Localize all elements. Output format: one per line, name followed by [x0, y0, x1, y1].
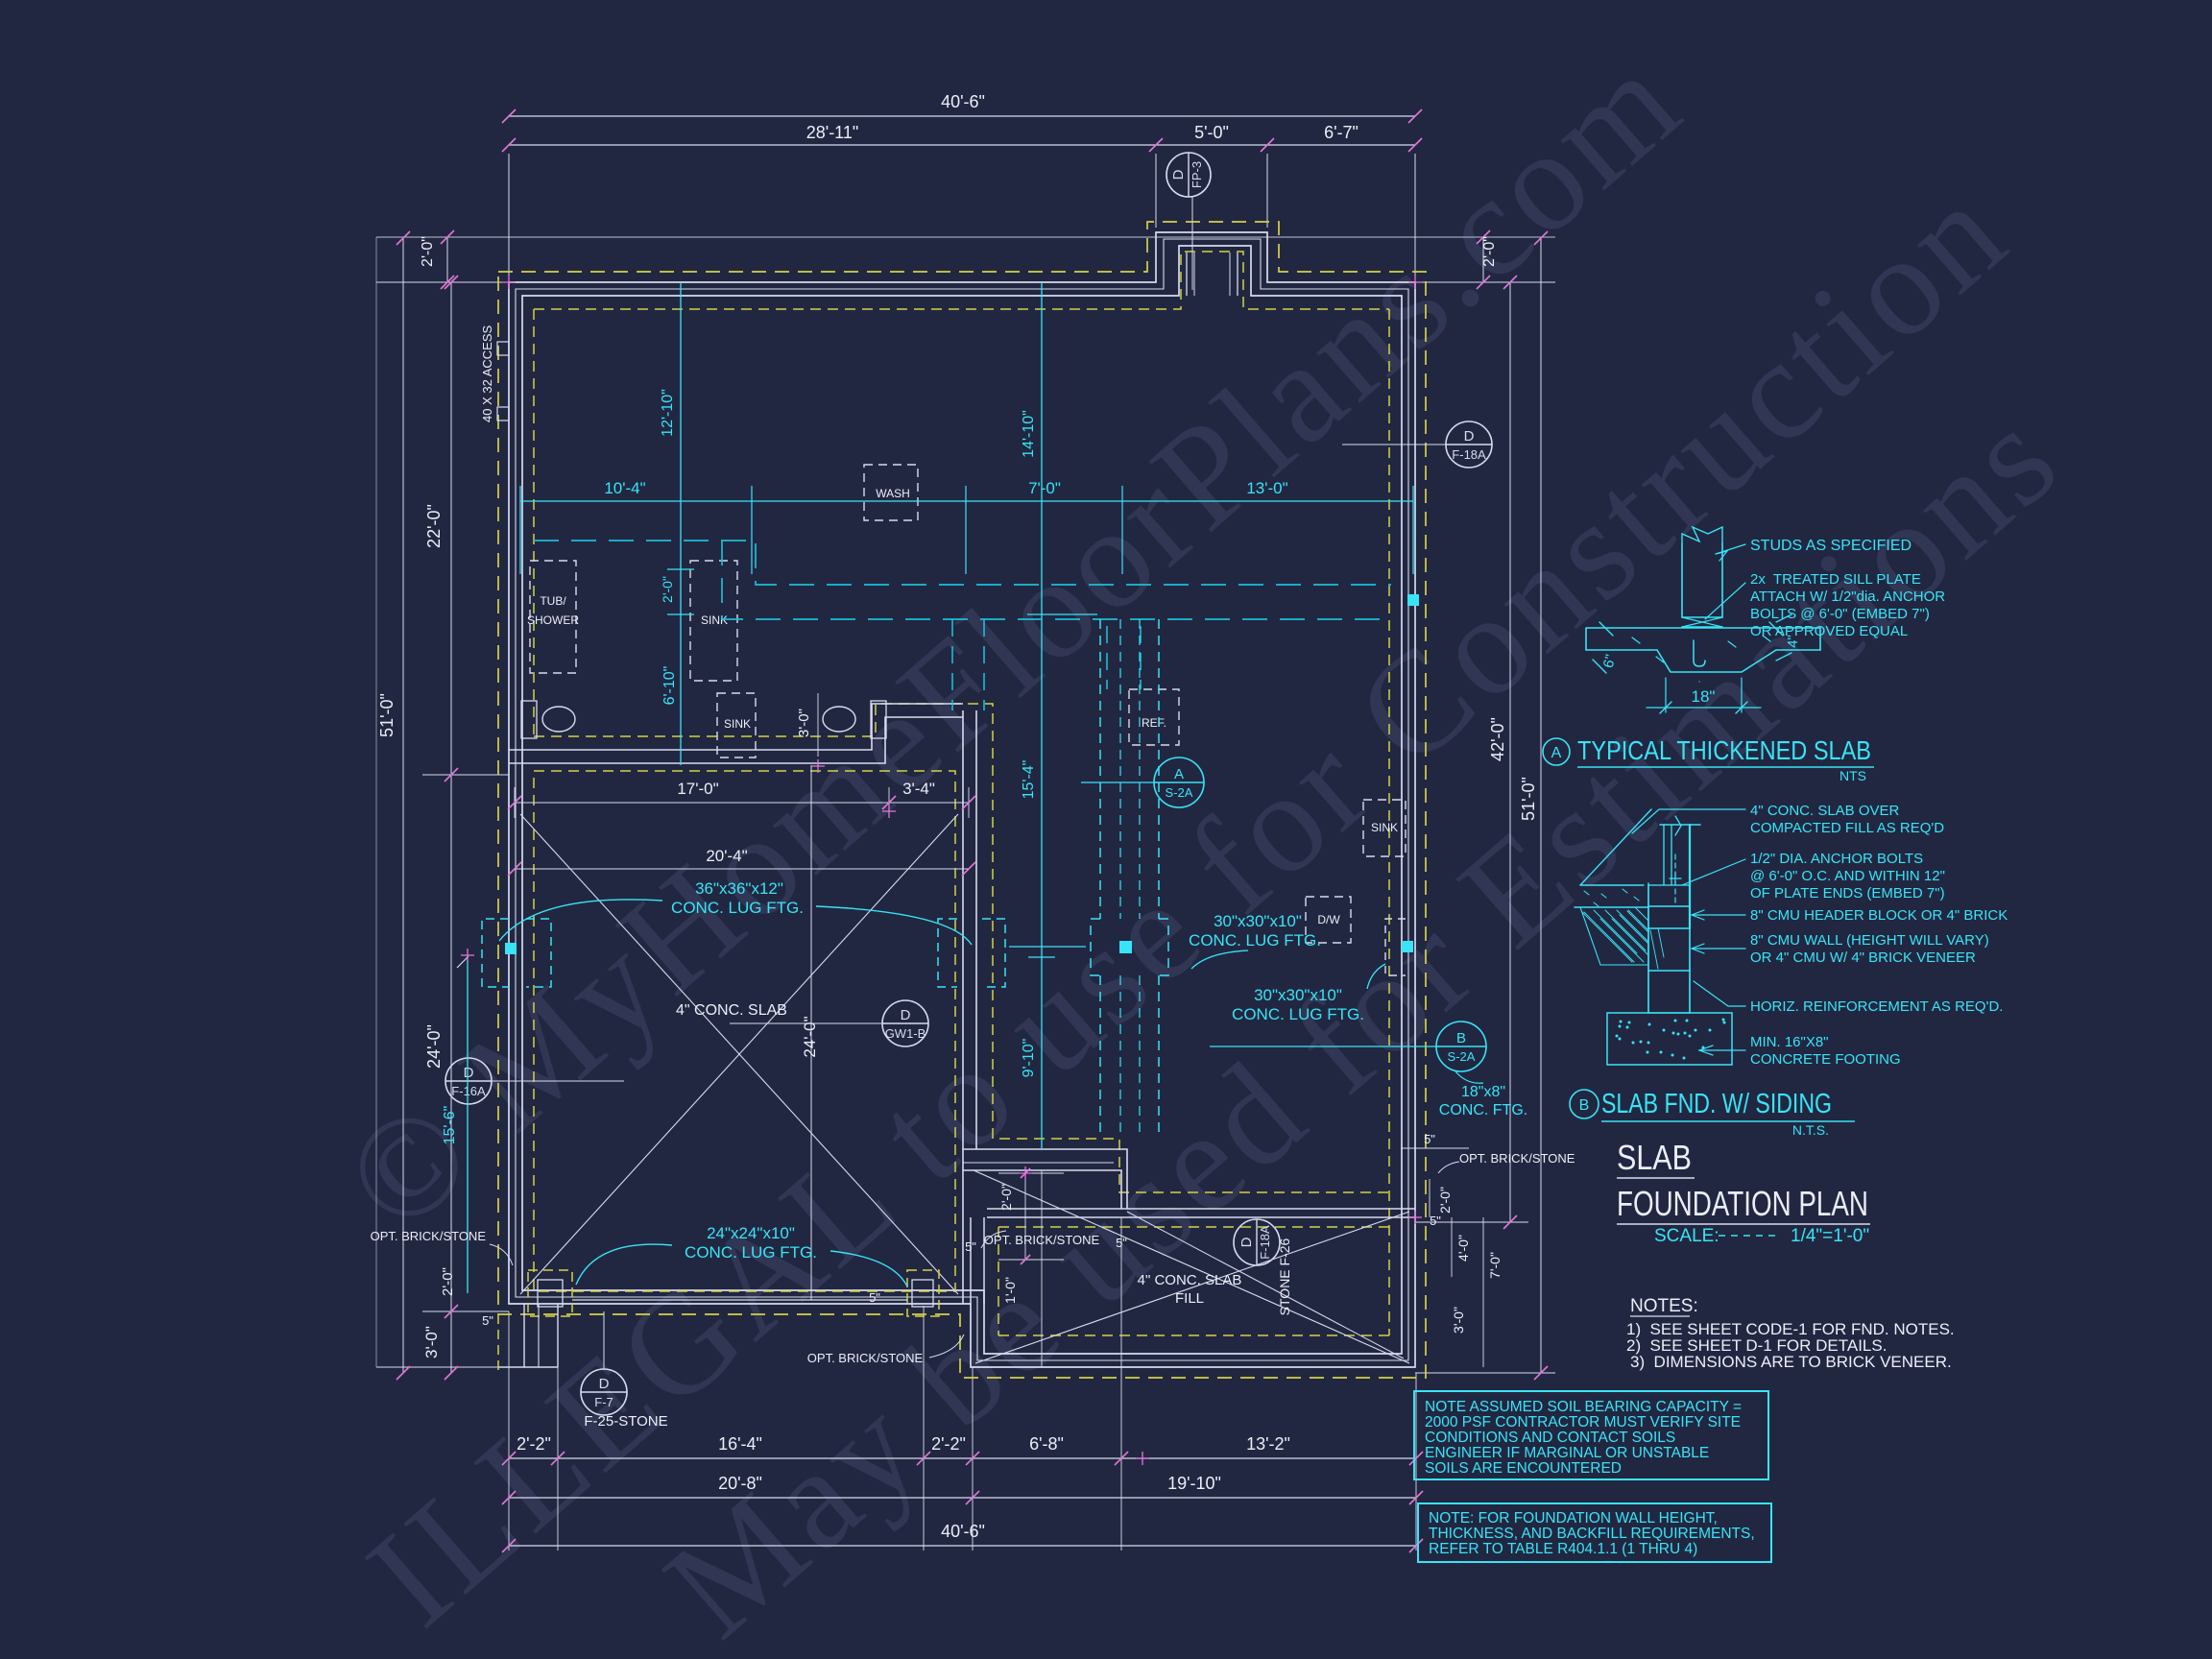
svg-text:F-18A: F-18A	[1258, 1225, 1272, 1260]
svg-text:9'-10": 9'-10"	[1021, 1039, 1037, 1078]
svg-text:COMPACTED FILL AS REQ'D: COMPACTED FILL AS REQ'D	[1750, 820, 1944, 836]
svg-text:CONC. LUG FTG.: CONC. LUG FTG.	[1232, 1005, 1364, 1023]
svg-text:40'-6": 40'-6"	[941, 1522, 985, 1541]
svg-text:NOTE: FOR FOUNDATION WALL HEIG: NOTE: FOR FOUNDATION WALL HEIGHT,	[1429, 1510, 1718, 1527]
svg-text:30"x30"x10": 30"x30"x10"	[1214, 912, 1302, 930]
svg-text:SINK: SINK	[701, 613, 728, 627]
svg-text:2'-2": 2'-2"	[931, 1434, 966, 1454]
svg-text:NOTES:: NOTES:	[1630, 1296, 1698, 1316]
svg-text:2'-0": 2'-0"	[660, 576, 675, 603]
svg-text:2x TREATED SILL PLATE: 2x TREATED SILL PLATE	[1750, 571, 1921, 588]
svg-text:4'-0": 4'-0"	[1455, 1235, 1471, 1262]
svg-text:2'-0": 2'-0"	[1437, 1187, 1453, 1214]
svg-text:28'-11": 28'-11"	[806, 123, 859, 142]
svg-text:5": 5"	[1430, 1214, 1441, 1228]
svg-text:36"x36"x12": 36"x36"x12"	[695, 879, 783, 898]
svg-text:1/4"=1'-0": 1/4"=1'-0"	[1791, 1226, 1869, 1246]
svg-text:4" CONC. SLAB OVER: 4" CONC. SLAB OVER	[1750, 803, 1900, 819]
svg-text:3'-0": 3'-0"	[1451, 1307, 1466, 1334]
svg-text:40 X 32 ACCESS: 40 X 32 ACCESS	[480, 325, 494, 422]
svg-text:B: B	[1579, 1097, 1590, 1114]
svg-text:F-16A: F-16A	[451, 1084, 486, 1098]
svg-text:F-18A: F-18A	[1452, 447, 1486, 462]
svg-text:OPT. BRICK/STONE: OPT. BRICK/STONE	[1459, 1151, 1575, 1166]
svg-text:GW1-B: GW1-B	[885, 1026, 926, 1041]
svg-text:5": 5"	[965, 1239, 976, 1254]
svg-text:14'-10": 14'-10"	[1021, 410, 1037, 458]
svg-text:7'-0": 7'-0"	[1028, 479, 1061, 497]
svg-text:D: D	[599, 1376, 610, 1392]
svg-text:8" CMU HEADER BLOCK OR 4" BRIC: 8" CMU HEADER BLOCK OR 4" BRICK	[1750, 907, 2008, 924]
svg-text:5": 5"	[1116, 1236, 1127, 1250]
svg-text:@ 6'-0" O.C. AND WITHIN 12": @ 6'-0" O.C. AND WITHIN 12"	[1750, 868, 1945, 884]
svg-text:D/W: D/W	[1317, 913, 1340, 926]
svg-text:CONDITIONS AND CONTACT SOILS: CONDITIONS AND CONTACT SOILS	[1425, 1430, 1675, 1446]
svg-text:3'-4": 3'-4"	[902, 780, 935, 798]
svg-text:24'-0": 24'-0"	[801, 1016, 819, 1057]
svg-text:17'-0": 17'-0"	[677, 780, 718, 798]
svg-text:40'-6": 40'-6"	[941, 92, 985, 111]
svg-text:SCALE:: SCALE:	[1654, 1226, 1719, 1246]
svg-text:SLAB FND. W/ SIDING: SLAB FND. W/ SIDING	[1601, 1089, 1832, 1119]
svg-text:SINK: SINK	[1371, 821, 1398, 834]
svg-text:FP-3: FP-3	[1190, 161, 1204, 188]
svg-text:3'-0": 3'-0"	[422, 1326, 441, 1358]
svg-text:18": 18"	[1692, 687, 1716, 706]
svg-text:N.T.S.: N.T.S.	[1792, 1122, 1829, 1138]
svg-text:STUDS AS SPECIFIED: STUDS AS SPECIFIED	[1750, 538, 1911, 554]
svg-text:TUB/: TUB/	[540, 594, 566, 608]
svg-text:6'-8": 6'-8"	[1029, 1434, 1064, 1454]
svg-text:HORIZ. REINFORCEMENT AS REQ'D.: HORIZ. REINFORCEMENT AS REQ'D.	[1750, 998, 2003, 1015]
svg-text:3'-0": 3'-0"	[796, 709, 812, 737]
svg-text:CONC. LUG FTG.: CONC. LUG FTG.	[671, 899, 804, 917]
svg-text:OR APPROVED EQUAL: OR APPROVED EQUAL	[1750, 623, 1908, 639]
svg-text:NTS: NTS	[1839, 768, 1866, 783]
svg-text:51'-0": 51'-0"	[1519, 777, 1538, 821]
svg-text:15'-4": 15'-4"	[1021, 760, 1037, 800]
svg-text:5": 5"	[482, 1313, 493, 1328]
svg-text:B: B	[1456, 1030, 1466, 1046]
svg-text:4" CONC. SLAB: 4" CONC. SLAB	[676, 1002, 787, 1019]
svg-text:A: A	[1551, 745, 1562, 761]
svg-text:OPT. BRICK/STONE: OPT. BRICK/STONE	[807, 1351, 924, 1365]
svg-text:13'-2": 13'-2"	[1246, 1434, 1290, 1454]
svg-text:REFER TO TABLE R404.1.1 (1 THR: REFER TO TABLE R404.1.1 (1 THRU 4)	[1429, 1541, 1697, 1557]
svg-text:CONC. LUG FTG.: CONC. LUG FTG.	[685, 1243, 817, 1262]
svg-text:F-7: F-7	[594, 1395, 613, 1409]
svg-text:MIN. 16"X8": MIN. 16"X8"	[1750, 1034, 1829, 1050]
svg-text:1/2" DIA. ANCHOR BOLTS: 1/2" DIA. ANCHOR BOLTS	[1750, 851, 1923, 867]
svg-text:BOLTS @ 6'-0" (EMBED 7"): BOLTS @ 6'-0" (EMBED 7")	[1750, 606, 1930, 622]
svg-text:OR 4" CMU W/ 4" BRICK VENEER: OR 4" CMU W/ 4" BRICK VENEER	[1750, 950, 1976, 966]
svg-text:D: D	[901, 1007, 911, 1023]
svg-text:2000 PSF CONTRACTOR MUST VERIF: 2000 PSF CONTRACTOR MUST VERIFY SITE	[1425, 1414, 1741, 1431]
svg-text:REF.: REF.	[1142, 716, 1166, 730]
svg-text:NOTE ASSUMED SOIL BEARING CAPA: NOTE ASSUMED SOIL BEARING CAPACITY =	[1425, 1399, 1742, 1415]
svg-text:5": 5"	[869, 1290, 880, 1305]
svg-text:D: D	[1238, 1237, 1255, 1247]
svg-text:20'-4": 20'-4"	[706, 847, 747, 865]
svg-text:SLAB: SLAB	[1617, 1138, 1692, 1177]
svg-text:2'-0": 2'-0"	[440, 1267, 456, 1296]
svg-text:SINK: SINK	[724, 717, 751, 731]
svg-text:16'-4": 16'-4"	[718, 1434, 762, 1454]
svg-text:5": 5"	[1424, 1132, 1435, 1146]
svg-text:2'-0": 2'-0"	[998, 1184, 1014, 1211]
svg-text:19'-10": 19'-10"	[1167, 1474, 1221, 1493]
svg-text:A: A	[1174, 766, 1184, 782]
svg-text:D: D	[464, 1065, 474, 1081]
svg-text:20'-8": 20'-8"	[718, 1474, 762, 1493]
svg-text:FILL: FILL	[1175, 1290, 1204, 1307]
svg-text:6'-10": 6'-10"	[661, 666, 678, 706]
svg-text:1'-0": 1'-0"	[1002, 1277, 1018, 1304]
svg-text:8" CMU WALL (HEIGHT WILL VARY): 8" CMU WALL (HEIGHT WILL VARY)	[1750, 932, 1989, 949]
svg-text:ENGINEER IF MARGINAL OR UNSTAB: ENGINEER IF MARGINAL OR UNSTABLE	[1425, 1445, 1709, 1461]
svg-text:D: D	[1170, 169, 1187, 180]
svg-text:13'-0": 13'-0"	[1246, 479, 1287, 497]
svg-text:OPT. BRICK/STONE: OPT. BRICK/STONE	[371, 1229, 487, 1243]
svg-text:15'-6": 15'-6"	[442, 1106, 458, 1145]
svg-text:10'-4": 10'-4"	[604, 479, 645, 497]
svg-text:6'-7": 6'-7"	[1324, 123, 1358, 142]
svg-text:ATTACH W/ 1/2"dia. ANCHOR: ATTACH W/ 1/2"dia. ANCHOR	[1750, 589, 1945, 605]
svg-text:SOILS ARE ENCOUNTERED: SOILS ARE ENCOUNTERED	[1425, 1460, 1622, 1477]
svg-text:3) DIMENSIONS ARE TO BRICK VE: 3) DIMENSIONS ARE TO BRICK VENEER.	[1630, 1353, 1952, 1371]
svg-text:OF PLATE ENDS (EMBED 7"): OF PLATE ENDS (EMBED 7")	[1750, 885, 1945, 902]
svg-text:TYPICAL THICKENED SLAB: TYPICAL THICKENED SLAB	[1577, 735, 1871, 765]
svg-text:OPT. BRICK/STONE: OPT. BRICK/STONE	[984, 1233, 1100, 1247]
svg-text:SHOWER: SHOWER	[527, 613, 579, 627]
svg-text:12'-10": 12'-10"	[660, 389, 676, 437]
svg-text:CONC. FTG.: CONC. FTG.	[1439, 1102, 1527, 1118]
svg-text:F-25-STONE: F-25-STONE	[584, 1413, 667, 1430]
svg-text:STONE F-26: STONE F-26	[1277, 1238, 1292, 1315]
svg-text:2'-0": 2'-0"	[1481, 236, 1498, 267]
svg-text:18"x8": 18"x8"	[1461, 1084, 1505, 1100]
svg-text:51'-0": 51'-0"	[377, 693, 397, 737]
svg-text:CONC. LUG FTG.: CONC. LUG FTG.	[1189, 931, 1321, 950]
svg-text:D: D	[1464, 428, 1475, 445]
svg-text:WASH: WASH	[876, 487, 910, 500]
svg-text:FOUNDATION PLAN: FOUNDATION PLAN	[1617, 1184, 1868, 1223]
svg-text:5'-0": 5'-0"	[1194, 123, 1229, 142]
svg-text:2'-2": 2'-2"	[517, 1434, 551, 1454]
svg-text:42'-0": 42'-0"	[1488, 717, 1507, 761]
svg-text:4" CONC. SLAB: 4" CONC. SLAB	[1138, 1272, 1242, 1288]
svg-text:S-2A: S-2A	[1166, 785, 1193, 800]
svg-text:22'-0": 22'-0"	[424, 504, 444, 548]
svg-text:CONCRETE FOOTING: CONCRETE FOOTING	[1750, 1051, 1901, 1068]
svg-text:S-2A: S-2A	[1448, 1049, 1476, 1064]
svg-text:24"x24"x10": 24"x24"x10"	[707, 1224, 795, 1242]
svg-text:24'-0": 24'-0"	[424, 1024, 444, 1069]
svg-text:THICKNESS, AND BACKFILL REQUIR: THICKNESS, AND BACKFILL REQUIREMENTS,	[1429, 1526, 1755, 1542]
svg-text:30"x30"x10": 30"x30"x10"	[1254, 986, 1342, 1004]
svg-text:2'-0": 2'-0"	[420, 236, 436, 267]
svg-text:7'-0": 7'-0"	[1487, 1252, 1503, 1279]
